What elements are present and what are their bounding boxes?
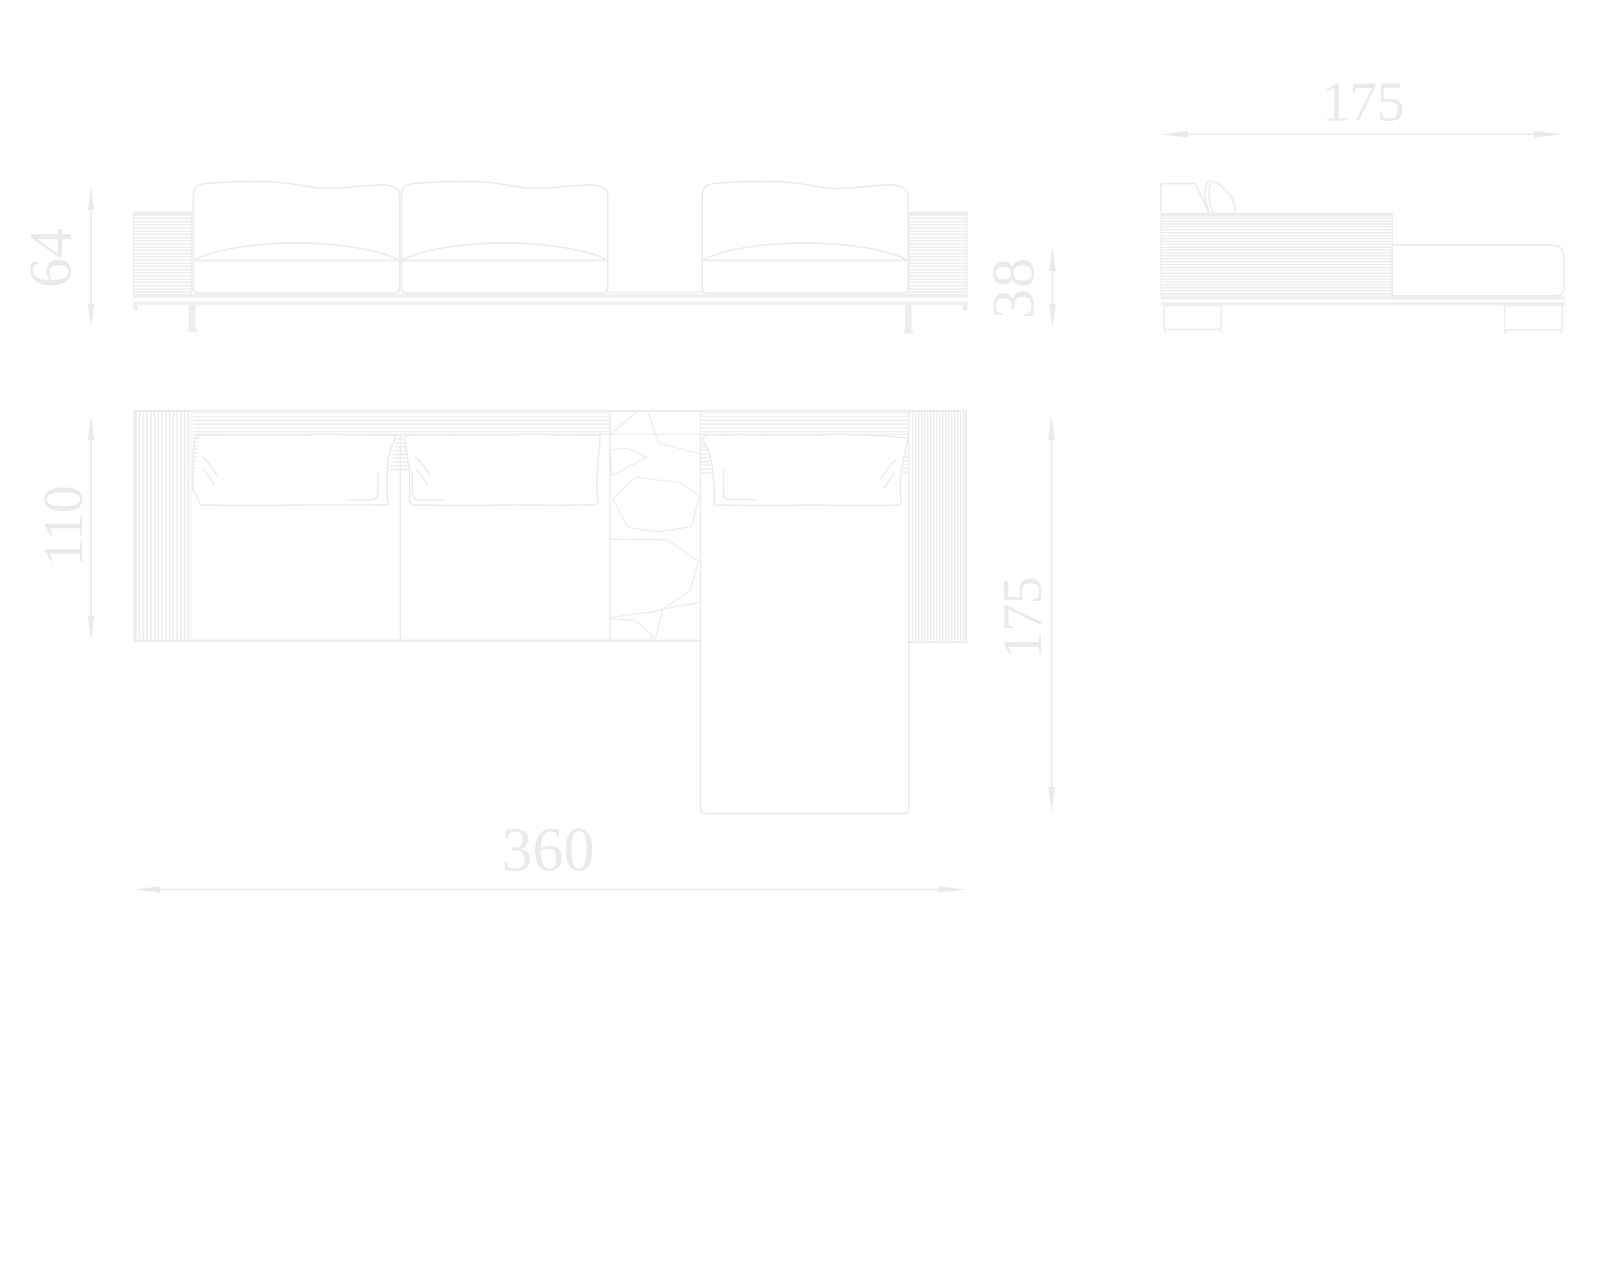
svg-text:110: 110 bbox=[33, 486, 95, 566]
svg-text:38: 38 bbox=[981, 257, 1047, 319]
svg-text:360: 360 bbox=[502, 817, 595, 885]
svg-text:175: 175 bbox=[1322, 72, 1405, 134]
svg-text:64: 64 bbox=[18, 228, 84, 288]
svg-text:175: 175 bbox=[992, 577, 1054, 660]
